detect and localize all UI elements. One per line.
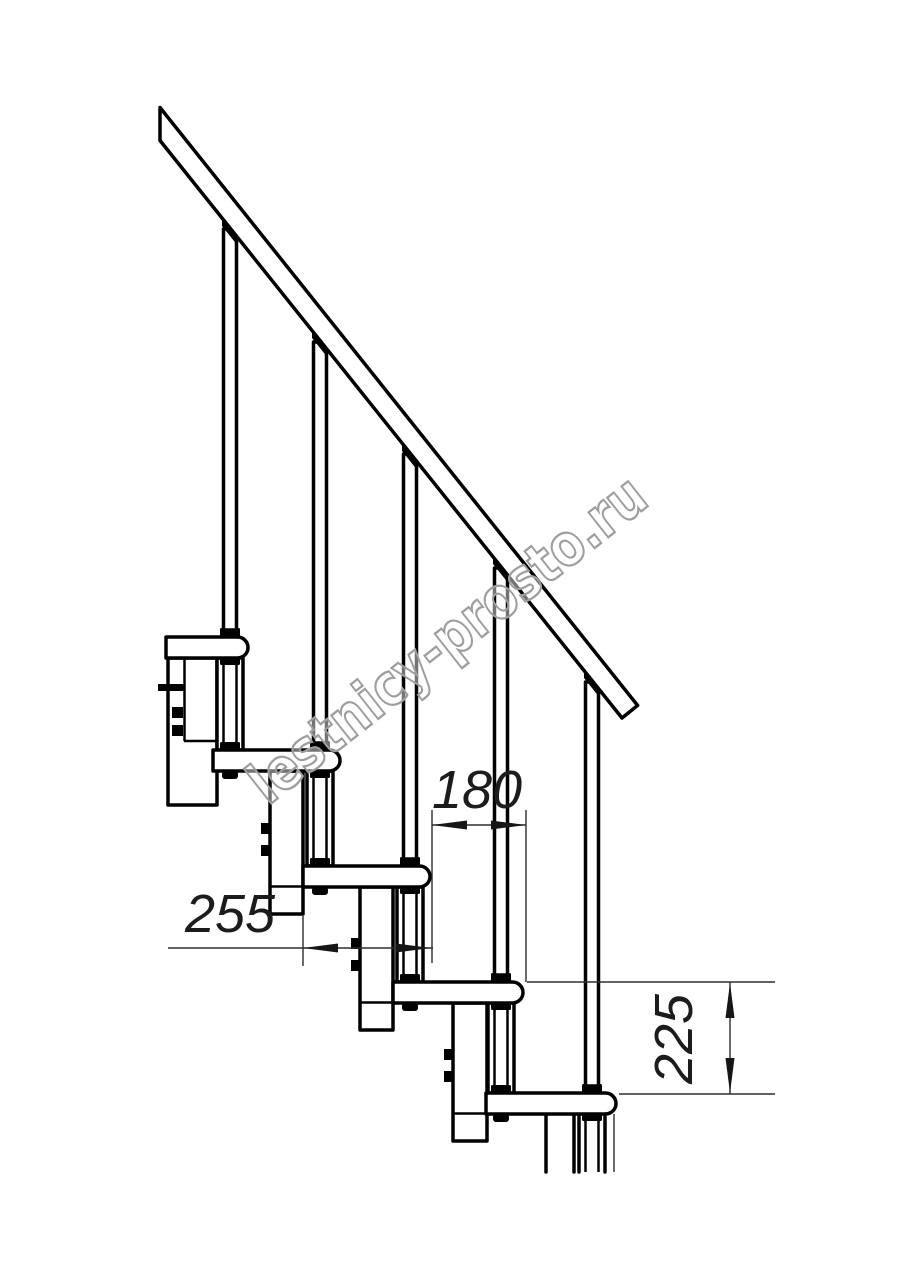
support-column-5 bbox=[546, 1114, 574, 1172]
dim-225-label: 225 bbox=[644, 993, 704, 1085]
tread-5 bbox=[486, 1093, 616, 1114]
support-column-4 bbox=[444, 1003, 487, 1141]
baluster-sleeve-1 bbox=[217, 658, 243, 750]
drawing-page: 180 255 225 lestnicy-prosto.ru bbox=[0, 0, 914, 1280]
support-column-1 bbox=[158, 658, 217, 805]
tread-3 bbox=[303, 866, 430, 887]
dim-255-label: 255 bbox=[184, 884, 276, 944]
baluster-1 bbox=[224, 229, 237, 630]
baluster-2 bbox=[314, 342, 327, 743]
dim-180: 180 bbox=[432, 760, 526, 982]
support-column-3 bbox=[351, 887, 393, 1030]
baluster-sleeve-5 bbox=[579, 1114, 614, 1172]
baluster-sleeve-3 bbox=[397, 887, 423, 982]
baluster-5 bbox=[586, 682, 599, 1086]
staircase-drawing: 180 255 225 lestnicy-prosto.ru bbox=[0, 0, 914, 1280]
dim-225: 225 bbox=[527, 982, 775, 1094]
baluster-sleeve-4 bbox=[488, 1003, 514, 1093]
tread-4 bbox=[393, 982, 523, 1003]
tread-1 bbox=[166, 637, 248, 658]
dim-180-label: 180 bbox=[432, 760, 522, 820]
